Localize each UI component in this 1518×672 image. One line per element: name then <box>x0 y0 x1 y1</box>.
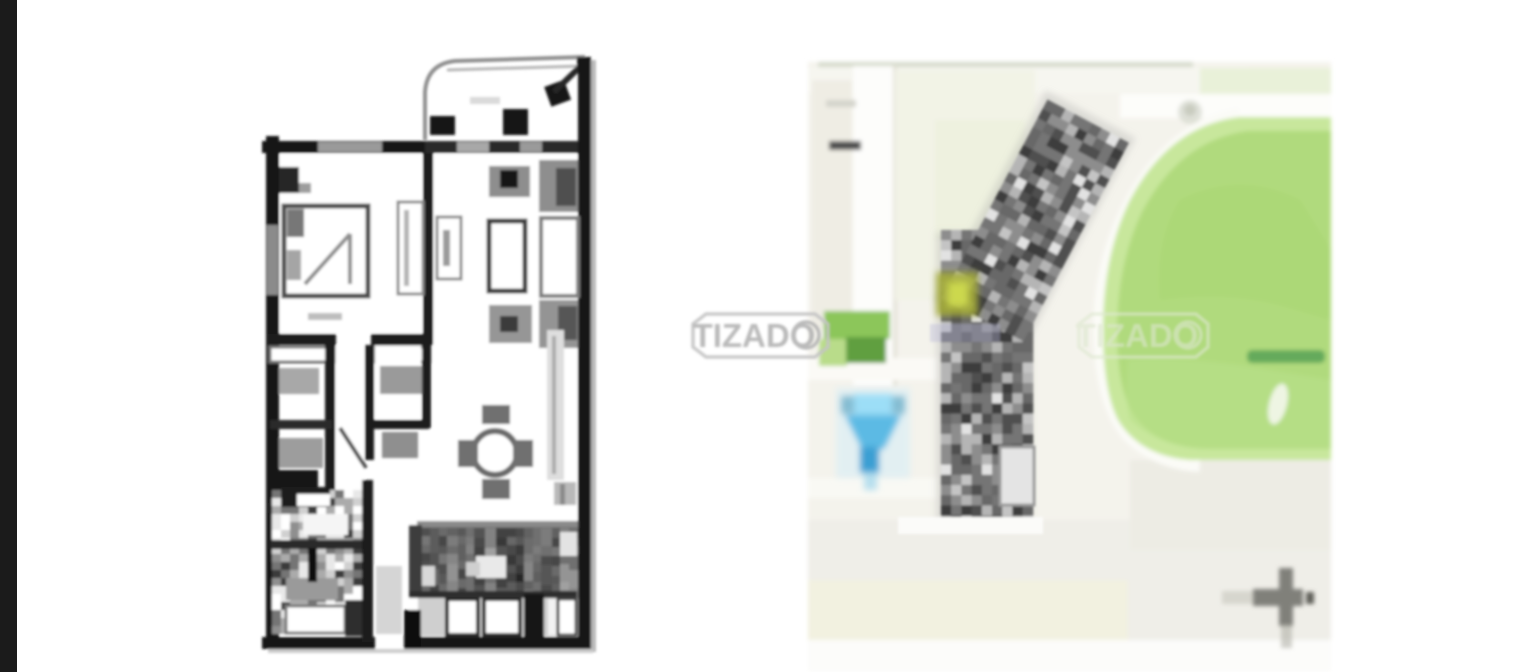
svg-text:TIZADO: TIZADO <box>1076 317 1199 354</box>
svg-text:TIZADO: TIZADO <box>693 317 816 354</box>
